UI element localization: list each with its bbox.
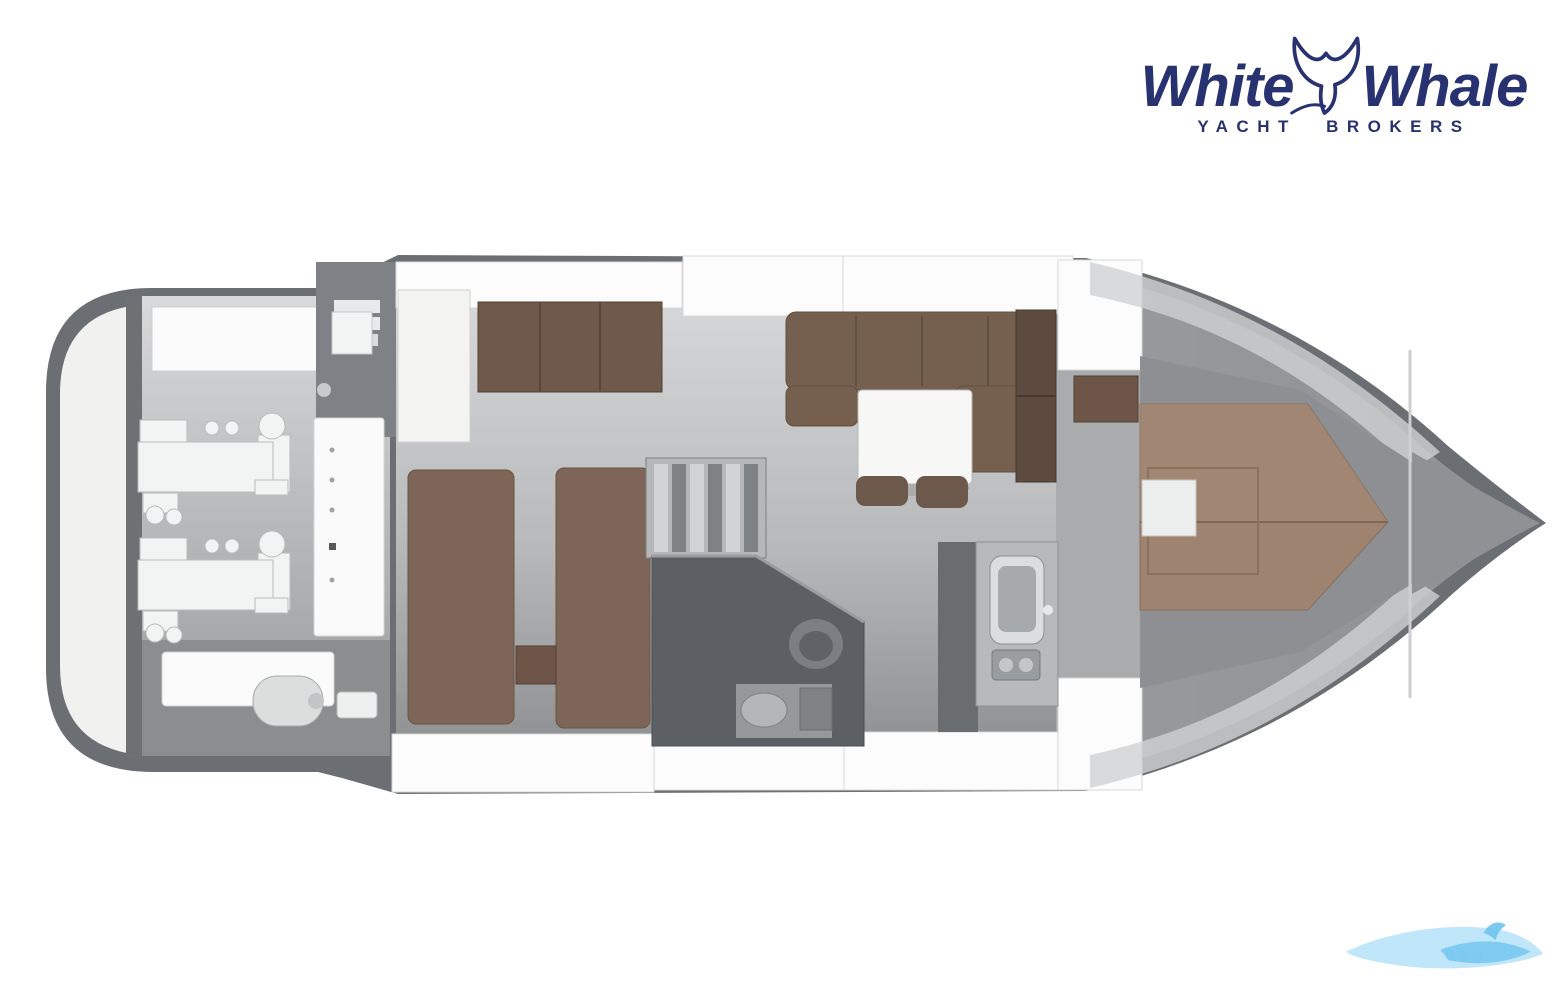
galley	[938, 542, 1058, 732]
stern-small-box	[337, 692, 377, 718]
shower-unit	[800, 688, 832, 730]
staircase	[646, 458, 766, 558]
watermark-glyphs	[1446, 949, 1483, 963]
yacht-floor-plan	[0, 0, 1560, 985]
stern-locker-top	[152, 307, 320, 371]
logo-subtitle: YACHT BROKERS	[1154, 117, 1514, 137]
galley-cabinet	[938, 542, 978, 732]
deck-bottom-salon	[844, 732, 1076, 790]
muffler-tank	[253, 676, 324, 726]
galley-stove	[992, 650, 1040, 680]
logo-row: White Whale	[1154, 34, 1514, 114]
transom-wall	[126, 296, 142, 758]
bath-sink	[741, 693, 787, 727]
stool	[916, 476, 968, 508]
wardrobe	[478, 302, 662, 392]
bed-port	[408, 470, 514, 724]
wave-whale-watermark	[1342, 912, 1547, 980]
salon-table	[858, 390, 972, 484]
berth-nightstand	[1142, 480, 1196, 536]
closet	[398, 290, 470, 442]
whale-tail-icon	[1284, 34, 1368, 116]
page: White Whale YACHT BROKERS	[0, 0, 1560, 985]
deck-top-salon	[843, 256, 1073, 314]
brand-logo: White Whale YACHT BROKERS	[1154, 34, 1514, 137]
deck-bottom-mid	[392, 734, 654, 792]
bed-starboard	[556, 468, 650, 728]
stern-storage	[316, 262, 396, 437]
bulkhead-panel	[314, 418, 384, 636]
faucet	[1043, 605, 1053, 615]
logo-word-right: Whale	[1362, 59, 1528, 114]
corridor-shelf	[1074, 376, 1138, 422]
deck-bottom-bath	[654, 746, 844, 790]
stool	[856, 476, 908, 506]
logo-word-left: White	[1141, 59, 1294, 114]
engine-room	[126, 262, 396, 758]
deck-top-door	[683, 256, 843, 316]
tall-cabinet	[1016, 310, 1056, 482]
nightstand	[516, 646, 556, 684]
